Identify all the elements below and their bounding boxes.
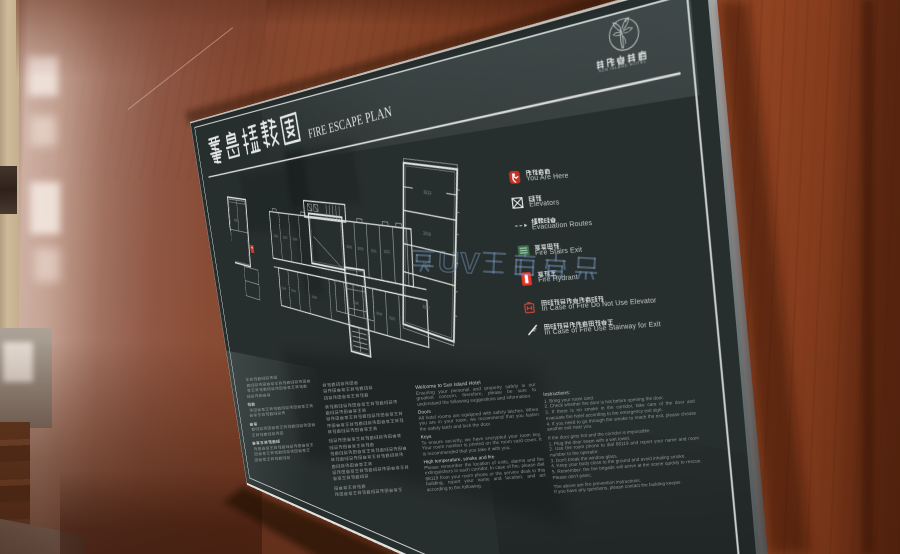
svg-text:3107: 3107 — [283, 237, 288, 241]
svg-text:3204: 3204 — [376, 313, 383, 318]
svg-text:3217: 3217 — [422, 304, 430, 312]
svg-text:3202: 3202 — [389, 317, 396, 322]
svg-text:3216: 3216 — [423, 231, 432, 238]
svg-text:3213: 3213 — [423, 190, 432, 197]
svg-text:3109: 3109 — [293, 238, 299, 242]
svg-text:3209: 3209 — [358, 248, 365, 252]
svg-text:3104: 3104 — [282, 287, 287, 291]
svg-text:3205: 3205 — [346, 246, 353, 250]
svg-text:3106: 3106 — [291, 290, 296, 294]
svg-text:3105: 3105 — [274, 235, 279, 239]
svg-text:3215: 3215 — [384, 251, 391, 256]
svg-text:3108: 3108 — [312, 296, 318, 300]
svg-text:3211: 3211 — [371, 250, 378, 254]
